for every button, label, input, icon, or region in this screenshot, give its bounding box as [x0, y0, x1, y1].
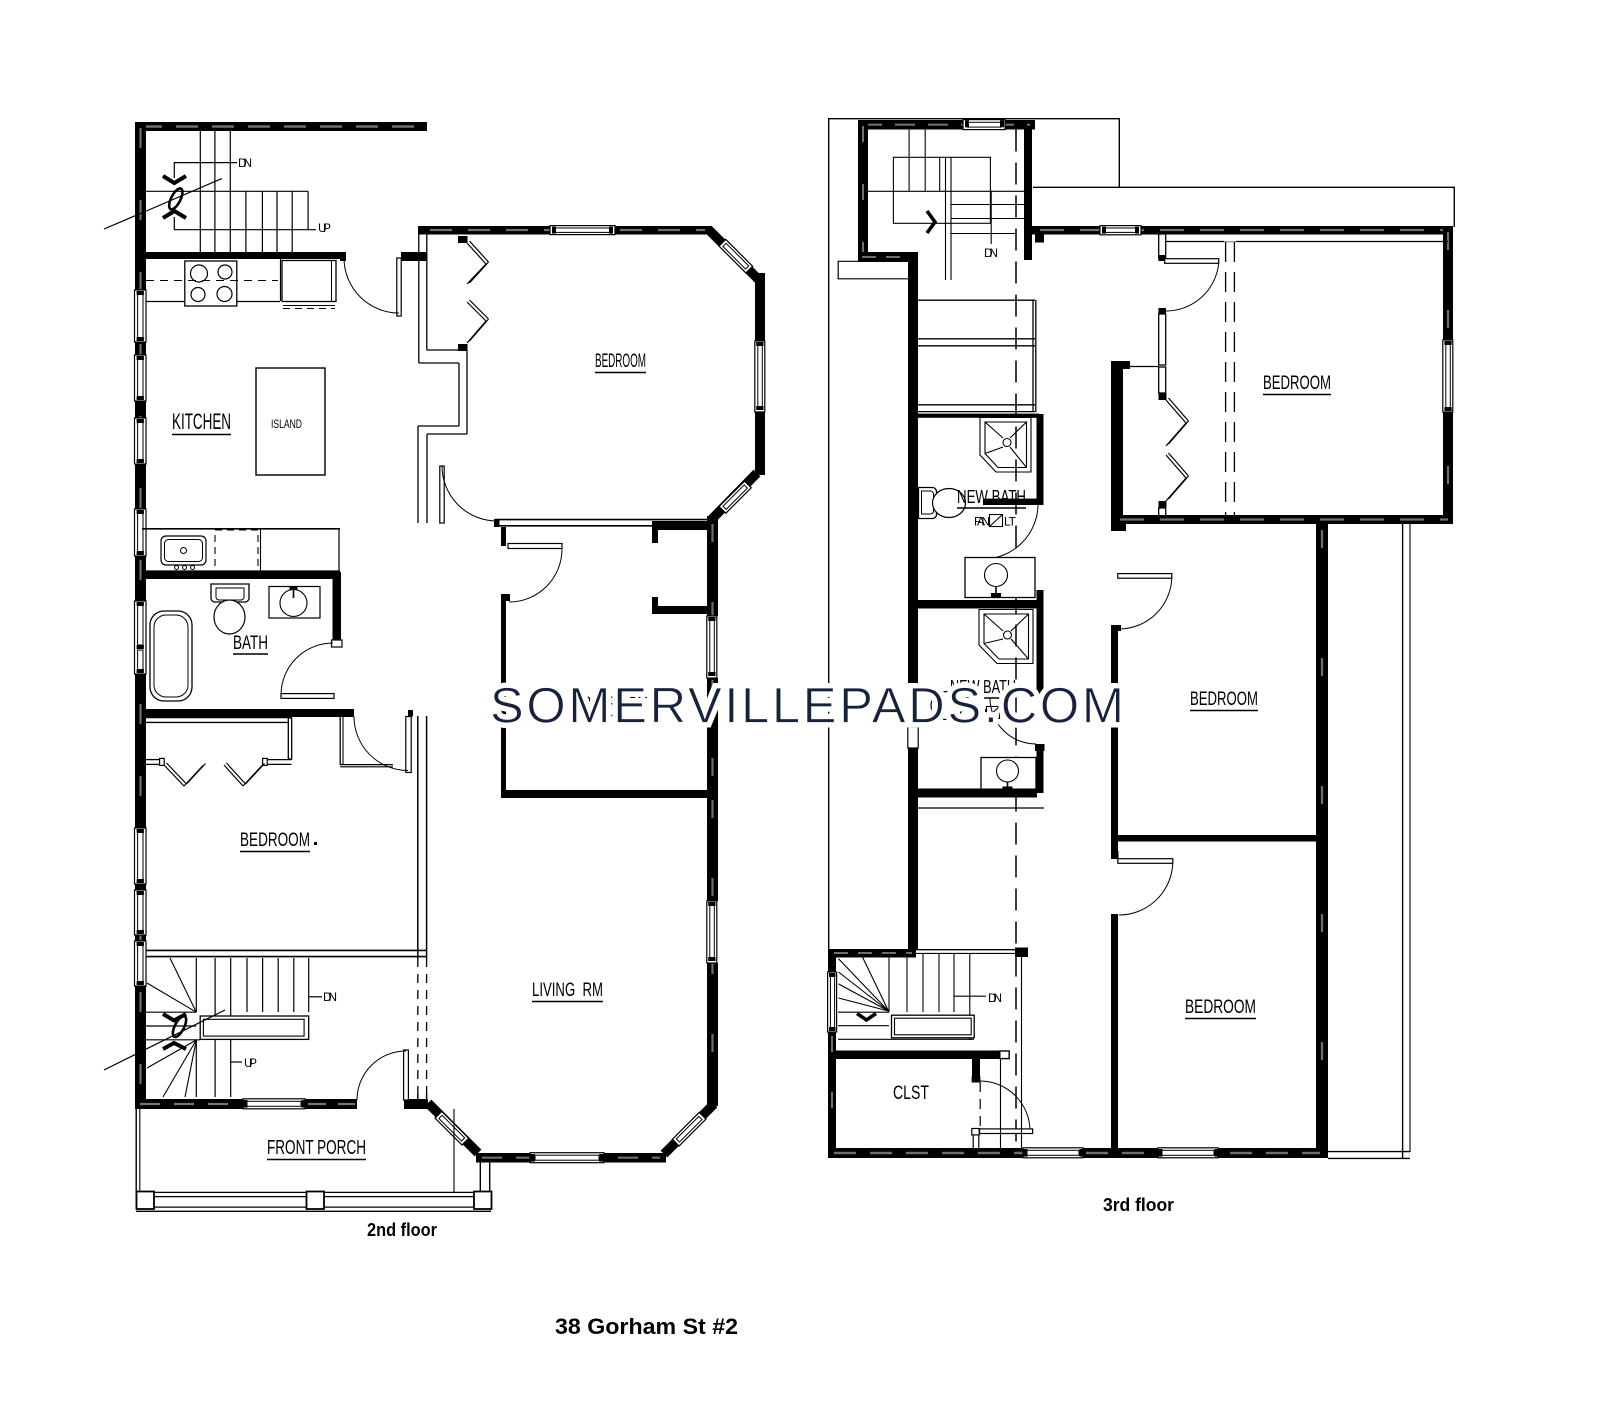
- svg-text:38 Gorham St #2: 38 Gorham St #2: [555, 1314, 738, 1339]
- svg-text:NEW BATH: NEW BATH: [957, 487, 1026, 507]
- svg-text:LT: LT: [1004, 515, 1017, 529]
- svg-text:CLST: CLST: [893, 1083, 929, 1104]
- svg-text:2nd floor: 2nd floor: [367, 1220, 437, 1240]
- svg-text:BATH: BATH: [233, 633, 268, 654]
- svg-text:BEDROOM: BEDROOM: [1185, 997, 1256, 1018]
- svg-text:FAN: FAN: [974, 515, 990, 529]
- svg-text:DN: DN: [984, 246, 998, 260]
- svg-text:3rd floor: 3rd floor: [1103, 1195, 1174, 1215]
- svg-text:SOMERVILLEPADS.COM: SOMERVILLEPADS.COM: [490, 677, 1128, 734]
- svg-text:BEDROOM: BEDROOM: [1190, 689, 1258, 710]
- svg-text:KITCHEN: KITCHEN: [172, 409, 231, 434]
- svg-text:DN: DN: [323, 990, 337, 1004]
- svg-text:ISLAND: ISLAND: [271, 419, 302, 431]
- svg-text:DN: DN: [238, 156, 252, 170]
- svg-text:UP: UP: [318, 221, 331, 235]
- svg-text:BEDROOM: BEDROOM: [595, 351, 646, 372]
- svg-text:BEDROOM: BEDROOM: [240, 830, 310, 851]
- svg-text:LIVING RM: LIVING RM: [532, 980, 603, 1001]
- svg-text:DN: DN: [988, 991, 1002, 1005]
- svg-text:BEDROOM: BEDROOM: [1263, 373, 1331, 394]
- svg-text:FRONT PORCH: FRONT PORCH: [267, 1137, 366, 1159]
- svg-text:UP: UP: [244, 1056, 257, 1070]
